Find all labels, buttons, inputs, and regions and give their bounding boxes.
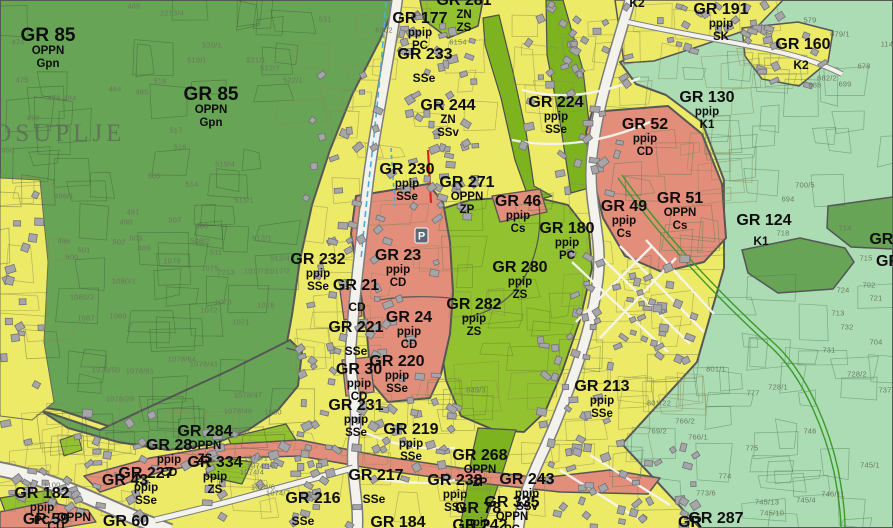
svg-text:P: P [418, 231, 425, 243]
parking-icon: P [415, 228, 428, 243]
map-canvas[interactable]: P [0, 0, 893, 528]
zoning-map[interactable]: P 474475478478484464485518519/12213/4488… [0, 0, 893, 528]
